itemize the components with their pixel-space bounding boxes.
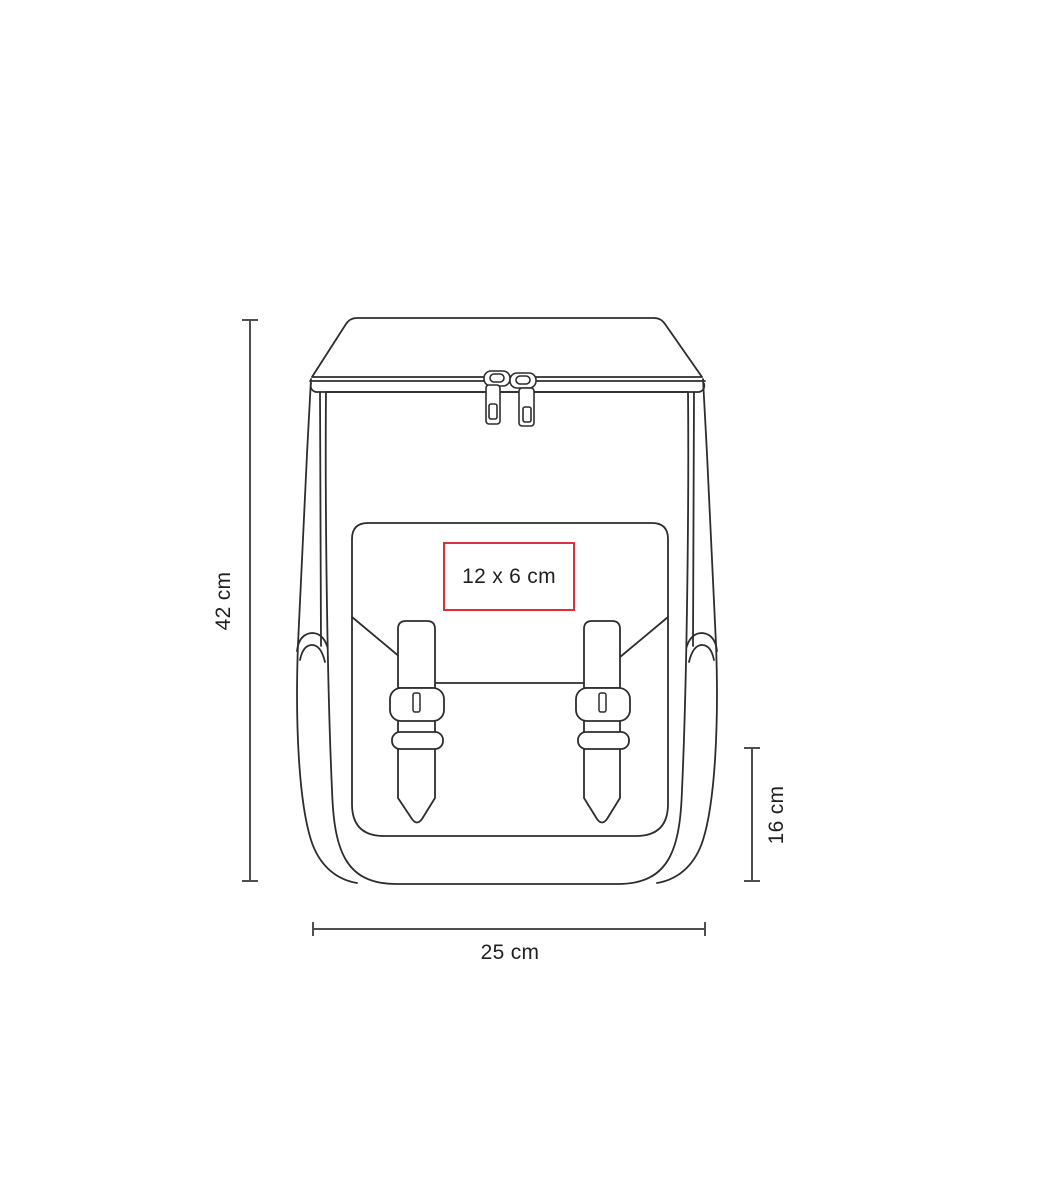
buckle-left-prong bbox=[413, 693, 420, 712]
diagram-canvas: 12 x 6 cm 42 cm 16 cm 25 cm bbox=[0, 0, 1043, 1200]
strap-left-keeper bbox=[392, 732, 443, 749]
pocket-height-dimension-label: 16 cm bbox=[764, 755, 790, 875]
strap-right-keeper bbox=[578, 732, 629, 749]
strap-left bbox=[390, 621, 444, 823]
buckle-right-prong bbox=[599, 693, 606, 712]
pocket-height-dimension-line bbox=[751, 748, 753, 881]
height-dimension-tick-bottom bbox=[242, 880, 258, 882]
imprint-area-box: 12 x 6 cm bbox=[443, 542, 575, 611]
height-dimension-tick-top bbox=[242, 319, 258, 321]
width-dimension-tick-left bbox=[312, 922, 314, 936]
width-dimension-line bbox=[313, 928, 705, 930]
imprint-area-label: 12 x 6 cm bbox=[462, 565, 556, 589]
pocket-height-dimension-tick-bottom bbox=[744, 880, 760, 882]
height-dimension-line bbox=[249, 320, 251, 882]
width-dimension-tick-right bbox=[704, 922, 706, 936]
pocket-height-dimension-tick-top bbox=[744, 747, 760, 749]
height-dimension-label: 42 cm bbox=[211, 541, 237, 661]
width-dimension-label: 25 cm bbox=[450, 939, 570, 967]
